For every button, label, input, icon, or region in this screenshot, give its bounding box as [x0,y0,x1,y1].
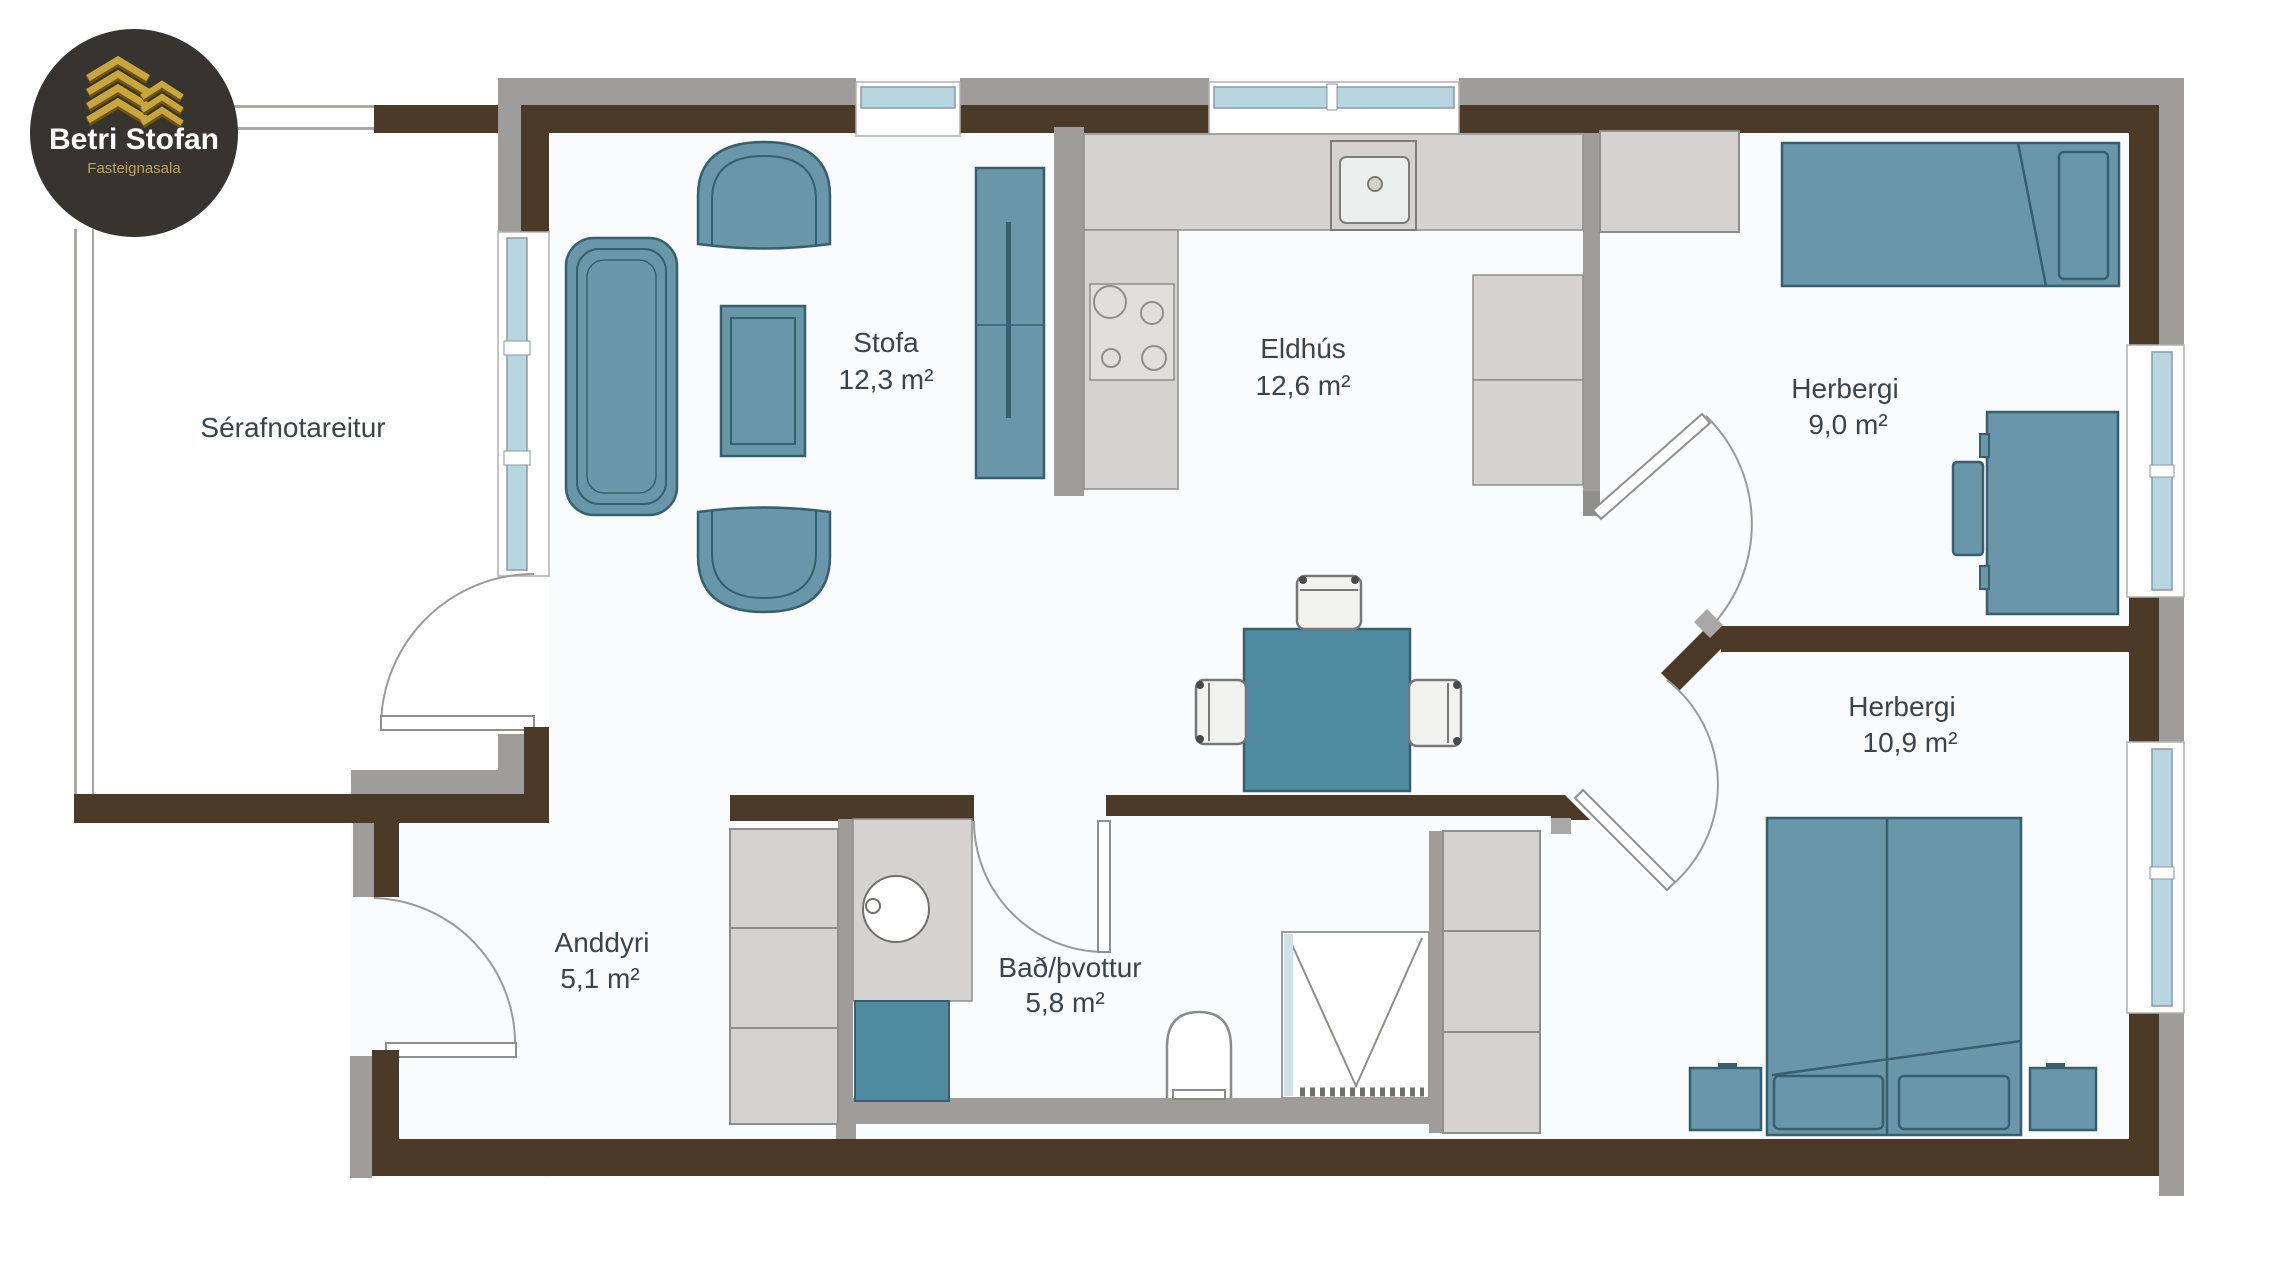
svg-text:12,6 m²: 12,6 m² [1256,370,1351,401]
svg-text:Sérafnotareitur: Sérafnotareitur [200,412,385,443]
svg-text:Herbergi: Herbergi [1791,373,1898,404]
svg-text:Fasteignasala: Fasteignasala [87,160,181,177]
svg-text:10,9 m²: 10,9 m² [1863,727,1958,758]
svg-text:Bað/þvottur: Bað/þvottur [998,952,1141,983]
svg-text:Anddyri: Anddyri [555,927,650,958]
svg-text:Stofa: Stofa [853,327,919,358]
svg-text:Betri Stofan: Betri Stofan [49,123,219,156]
svg-text:5,8 m²: 5,8 m² [1025,987,1104,1018]
svg-text:Herbergi: Herbergi [1848,691,1955,722]
svg-text:9,0 m²: 9,0 m² [1808,409,1887,440]
svg-text:5,1 m²: 5,1 m² [560,963,639,994]
svg-text:Eldhús: Eldhús [1260,333,1346,364]
svg-text:12,3 m²: 12,3 m² [839,364,934,395]
